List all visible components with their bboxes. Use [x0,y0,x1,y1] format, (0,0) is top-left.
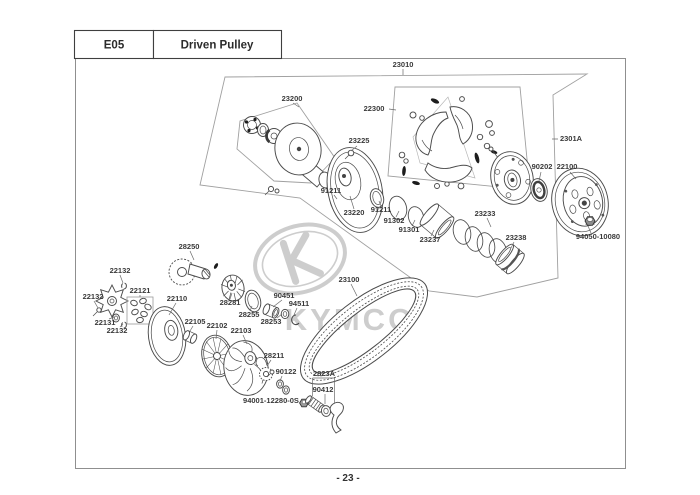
part-label-23100: 23100 [339,275,360,284]
kick-gear-28250 [169,259,211,285]
part-label-90412: 90412 [313,385,334,394]
parts-diagram: KYMCO [0,0,700,495]
part-label-22105: 22105 [185,317,206,326]
part-label-22103: 22103 [231,326,252,335]
part-label-90202: 90202 [532,162,553,171]
clutch-shoe [450,107,473,144]
section-title: Driven Pulley [181,40,254,52]
kick-arm [330,402,343,433]
catalog-page: KYMCO [0,0,700,495]
part-label-90122: 90122 [276,367,297,376]
part-label-91211: 91211 [371,205,391,214]
kymco-k-icon [283,234,320,281]
page-header: E05 Driven Pulley [75,31,282,59]
part-label-28255: 28255 [239,310,260,319]
part-label-91301: 91301 [399,225,420,234]
part-label-23225: 23225 [349,136,370,145]
washer-28253 [281,309,289,318]
clutch-shoe [425,163,472,182]
clutch-bell-22100 [546,163,615,241]
part-label-94050-10080: 94050-10080 [576,232,620,241]
part-label-23010: 23010 [393,60,414,69]
part-label-22110: 22110 [167,294,187,303]
part-label-2823A: 2823A [313,369,336,378]
part-label-28211: 28211 [264,351,284,360]
clutch-drive-plate [486,147,538,208]
star-plate-22132 [96,285,128,317]
part-label-22102: 22102 [207,321,228,330]
part-label-23237: 23237 [420,235,441,244]
ring-23238 [493,242,527,276]
subassembly-23200 [244,117,339,193]
part-label-22121: 22121 [130,286,151,295]
part-label-22132: 22132 [83,292,104,301]
part-label-94001-12280-0S: 94001-12280-0S [243,396,299,405]
part-label-94511: 94511 [289,299,309,308]
part-label-28250: 28250 [179,242,200,251]
part-label-91211: 91211 [321,186,341,195]
part-label-23233: 23233 [475,209,496,218]
part-label-28281: 28281 [220,298,241,307]
roller-box-22121 [127,297,153,324]
clip-22132-a [122,283,127,289]
part-label-23200: 23200 [282,94,303,103]
part-label-28253: 28253 [261,317,282,326]
part-label-22132: 22132 [107,326,128,335]
part-label-23220: 23220 [344,208,365,217]
section-code: E05 [104,40,125,52]
part-label-22132: 22132 [110,266,131,275]
part-label-23238: 23238 [506,233,527,242]
part-label-22300: 22300 [364,104,385,113]
part-label-22100: 22100 [557,162,578,171]
part-label-91302: 91302 [384,216,405,225]
gear-28281 [213,262,246,303]
clutch-group-22300 [399,97,498,189]
pin-22132-b [93,308,101,316]
nut-94050 [585,217,595,226]
part-label-2301A: 2301A [560,134,583,143]
page-border [76,59,626,469]
page-number: - 23 - [336,473,359,484]
drive-face-22110 [145,304,190,368]
